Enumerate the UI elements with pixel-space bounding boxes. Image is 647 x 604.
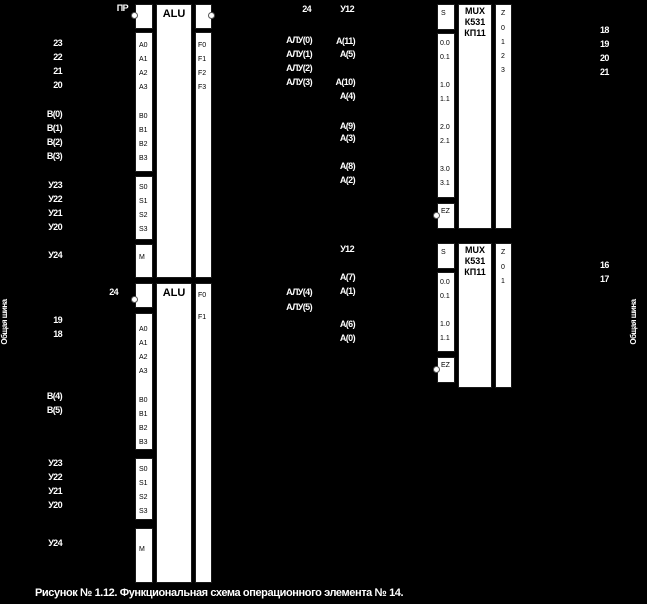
- mux2-ez-bubble-icon: [433, 366, 440, 373]
- signal-mux1-in5: А(3): [325, 133, 355, 143]
- signal-alu1-b3: В(3): [28, 151, 62, 161]
- signal-alu2-s1: У22: [28, 472, 62, 482]
- mux1-pin-0-0: 0.0: [440, 39, 450, 49]
- signal-alu1-s0: У23: [28, 180, 62, 190]
- mux1-s-pin-box: [437, 4, 455, 30]
- signal-alu1-a-22: 22: [28, 52, 62, 62]
- alu1-pin-f2: F2: [198, 69, 206, 79]
- signal-alu1-b0: В(0): [28, 109, 62, 119]
- mux1-pin-0-1: 0.1: [440, 53, 450, 63]
- signal-alu2-a-19: 19: [28, 315, 62, 325]
- signal-mux2-out1: 17: [600, 274, 609, 284]
- signal-mux2-in0: А(7): [325, 272, 355, 282]
- alu1-pin-s3: S3: [139, 225, 148, 235]
- mux1-pin-1-1: 1.1: [440, 95, 450, 105]
- functional-diagram: ALU A0 A1 A2 A3 B0 B1 B2 B3 S0 S1 S2 S3 …: [0, 0, 647, 604]
- alu2-pin-s2: S2: [139, 493, 148, 503]
- mux1-pin-2-0: 2.0: [440, 123, 450, 133]
- signal-alu1-a-21: 21: [28, 66, 62, 76]
- signal-alu2-s0: У23: [28, 458, 62, 468]
- mux1-pin-z: Z: [501, 9, 505, 19]
- mux1-pin-2-1: 2.1: [440, 137, 450, 147]
- mux1-title-line1: MUX: [458, 6, 492, 17]
- alu1-pin-b3: B3: [139, 154, 148, 164]
- alu2-pin-s3: S3: [139, 507, 148, 517]
- alu2-carry-in-bubble-icon: [131, 296, 138, 303]
- signal-mux1-in0: А(11): [325, 36, 355, 46]
- mux2-pin-ez: EZ: [441, 361, 450, 371]
- alu2-pin-m: M: [139, 545, 145, 555]
- signal-mux1-in6: А(8): [325, 161, 355, 171]
- alu2-pin-b2: B2: [139, 424, 148, 434]
- mux1-title-line2: К531: [458, 17, 492, 28]
- bus-left-label: Общая шина: [1, 299, 9, 345]
- signal-alu2-a-18: 18: [28, 329, 62, 339]
- mux1-pin-s: S: [441, 9, 446, 19]
- mux2-pin-s: S: [441, 248, 446, 258]
- signal-mux1-out0: 18: [600, 25, 609, 35]
- signal-alu1-f3: АЛУ(3): [270, 77, 312, 87]
- alu1-pin-a2: A2: [139, 69, 148, 79]
- alu1-pin-f0: F0: [198, 41, 206, 51]
- alu1-pin-s1: S1: [139, 197, 148, 207]
- alu2-pin-s0: S0: [139, 465, 148, 475]
- alu1-pin-f1: F1: [198, 55, 206, 65]
- signal-alu2-s2: У21: [28, 486, 62, 496]
- signal-mux2-out0: 16: [600, 260, 609, 270]
- signal-mux1-in3: А(4): [325, 91, 355, 101]
- alu2-pin-s1: S1: [139, 479, 148, 489]
- alu1-pin-a1: A1: [139, 55, 148, 65]
- mux1-ez-bubble-icon: [433, 212, 440, 219]
- alu1-pin-m: M: [139, 253, 145, 263]
- signal-alu1-a-20: 20: [28, 80, 62, 90]
- signal-mux1-out2: 20: [600, 53, 609, 63]
- signal-mux1-out3: 21: [600, 67, 609, 77]
- alu1-ab-pin-box: [135, 32, 153, 172]
- alu1-title: ALU: [156, 8, 192, 20]
- signal-alu2-carry-in: 24: [100, 287, 118, 297]
- signal-alu1-f2: АЛУ(2): [270, 63, 312, 73]
- mux2-s-pin-box: [437, 243, 455, 269]
- signal-alu2-f0: АЛУ(4): [270, 287, 312, 297]
- alu2-pin-b3: B3: [139, 438, 148, 448]
- mux1-pin-z3: 3: [501, 66, 505, 76]
- signal-mux2-in3: А(0): [325, 333, 355, 343]
- signal-alu2-m: У24: [28, 538, 62, 548]
- mux2-pin-z1: 1: [501, 277, 505, 287]
- signal-alu1-m: У24: [28, 250, 62, 260]
- mux2-pin-1-0: 1.0: [440, 320, 450, 330]
- alu2-pin-a1: A1: [139, 339, 148, 349]
- alu2-pin-a0: A0: [139, 325, 148, 335]
- mux1-pin-z2: 2: [501, 52, 505, 62]
- signal-alu1-f0: АЛУ(0): [270, 35, 312, 45]
- signal-alu1-f1: АЛУ(1): [270, 49, 312, 59]
- signal-alu1-a-23: 23: [28, 38, 62, 48]
- alu1-pin-b0: B0: [139, 112, 148, 122]
- alu2-pin-a3: A3: [139, 367, 148, 377]
- mux2-pin-z: Z: [501, 248, 505, 258]
- signal-alu1-carry-out: 24: [293, 4, 311, 14]
- alu2-m-pin-box: [135, 528, 153, 583]
- alu2-pin-b1: B1: [139, 410, 148, 420]
- alu2-pin-f1: F1: [198, 313, 206, 323]
- mux1-pin-z1: 1: [501, 38, 505, 48]
- mux2-title-line1: MUX: [458, 245, 492, 256]
- alu2-f-pin-box: [195, 283, 212, 583]
- mux2-pin-0-0: 0.0: [440, 278, 450, 288]
- bus-right-label: Общая шина: [630, 299, 638, 345]
- signal-mux1-out1: 19: [600, 39, 609, 49]
- signal-alu2-f1: АЛУ(5): [270, 302, 312, 312]
- mux2-title-line2: К531: [458, 256, 492, 267]
- signal-mux2-in1: А(1): [325, 286, 355, 296]
- alu1-pin-a3: A3: [139, 83, 148, 93]
- alu2-pin-a2: A2: [139, 353, 148, 363]
- alu2-title: ALU: [156, 287, 192, 299]
- alu1-pin-f3: F3: [198, 83, 206, 93]
- mux1-title-line3: КП11: [458, 28, 492, 39]
- signal-alu2-s3: У20: [28, 500, 62, 510]
- signal-alu1-b2: В(2): [28, 137, 62, 147]
- mux2-title-line3: КП11: [458, 267, 492, 278]
- signal-alu2-b5: В(5): [28, 405, 62, 415]
- mux1-pin-1-0: 1.0: [440, 81, 450, 91]
- signal-alu1-s1: У22: [28, 194, 62, 204]
- mux1-pin-3-1: 3.1: [440, 179, 450, 189]
- signal-alu1-s2: У21: [28, 208, 62, 218]
- alu1-pin-s2: S2: [139, 211, 148, 221]
- alu1-pin-b2: B2: [139, 140, 148, 150]
- signal-mux2-select: У12: [328, 244, 354, 254]
- signal-mux1-in4: А(9): [325, 121, 355, 131]
- signal-mux1-in1: А(5): [325, 49, 355, 59]
- alu2-pin-f0: F0: [198, 291, 206, 301]
- alu1-pin-s0: S0: [139, 183, 148, 193]
- figure-caption: Рисунок № 1.12. Функциональная схема опе…: [35, 587, 403, 599]
- alu2-pin-b0: B0: [139, 396, 148, 406]
- mux1-pin-z0: 0: [501, 24, 505, 34]
- mux1-pin-ez: EZ: [441, 207, 450, 217]
- signal-alu1-carry-in: ПР: [110, 3, 128, 13]
- alu1-carry-in-bubble-icon: [131, 12, 138, 19]
- signal-alu1-s3: У20: [28, 222, 62, 232]
- alu1-body-box: [156, 4, 192, 278]
- alu1-pin-a0: A0: [139, 41, 148, 51]
- signal-alu1-b1: В(1): [28, 123, 62, 133]
- alu2-body-box: [156, 283, 192, 583]
- mux2-pin-z0: 0: [501, 263, 505, 273]
- mux2-pin-1-1: 1.1: [440, 334, 450, 344]
- alu2-carry-in-box: [135, 283, 153, 308]
- signal-mux1-in2: А(10): [325, 77, 355, 87]
- alu1-carry-out-bubble-icon: [208, 12, 215, 19]
- signal-mux2-in2: А(6): [325, 319, 355, 329]
- signal-mux1-select: У12: [328, 4, 354, 14]
- alu1-pin-b1: B1: [139, 126, 148, 136]
- mux1-pin-3-0: 3.0: [440, 165, 450, 175]
- signal-mux1-in7: А(2): [325, 175, 355, 185]
- mux2-pin-0-1: 0.1: [440, 292, 450, 302]
- signal-alu2-b4: В(4): [28, 391, 62, 401]
